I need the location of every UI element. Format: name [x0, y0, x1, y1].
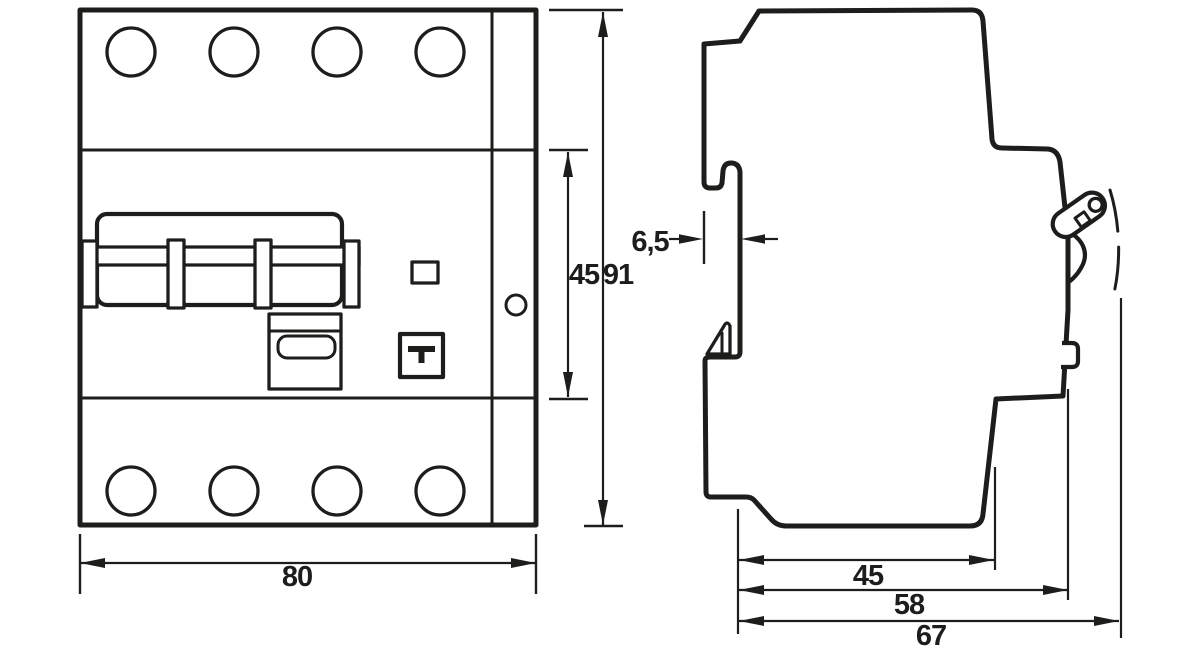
din-rail-clip — [707, 323, 730, 354]
terminal-circle — [416, 467, 464, 515]
terminal-circle — [416, 28, 464, 76]
lever-swing-arc — [1110, 190, 1119, 293]
handle-end-cap-left — [82, 241, 97, 307]
handle-tie-bar — [82, 247, 359, 265]
arrow-down-icon — [598, 500, 608, 525]
dimension-drawing: 80 45 91 — [0, 0, 1200, 657]
arrow-right-icon — [511, 558, 536, 568]
front-handle-assembly — [82, 214, 359, 308]
arrow-left-icon — [739, 616, 764, 626]
dim-67-label: 67 — [916, 620, 946, 652]
peephole-circle — [506, 295, 526, 315]
dim-45-front-label: 45 — [569, 259, 600, 291]
arrow-left-icon — [739, 555, 764, 565]
handle-connector — [255, 240, 271, 308]
test-button — [400, 334, 443, 377]
dimension-drawing-page: 80 45 91 — [0, 0, 1200, 657]
indicator-window — [412, 262, 438, 283]
side-view — [704, 10, 1119, 526]
dim-91-label: 91 — [603, 259, 634, 291]
t-symbol-icon — [408, 346, 435, 352]
front-view — [80, 10, 536, 525]
arrow-right-icon — [1094, 616, 1119, 626]
dim-45-side-label: 45 — [853, 560, 884, 592]
terminal-circle — [313, 467, 361, 515]
arrow-right-icon — [679, 234, 703, 243]
handle-end-cap-right — [344, 241, 359, 307]
dim-58-label: 58 — [894, 589, 925, 621]
arrow-up-icon — [563, 152, 573, 177]
clip-wedge — [707, 323, 730, 354]
arrow-left-icon — [80, 558, 105, 568]
handle-connector — [168, 240, 184, 308]
front-tab — [1061, 343, 1078, 367]
terminal-circle — [313, 28, 361, 76]
dim-80-label: 80 — [282, 561, 312, 593]
front-status-window — [269, 314, 341, 389]
t-symbol-stem-icon — [419, 352, 425, 363]
arrow-right-icon — [969, 555, 994, 565]
arrow-down-icon — [563, 372, 573, 397]
side-body-outline — [704, 10, 1068, 526]
status-window-flag — [278, 336, 335, 358]
arrow-left-icon — [739, 585, 764, 595]
terminal-circle — [107, 28, 155, 76]
arrow-up-icon — [598, 12, 608, 37]
terminal-circle — [210, 28, 258, 76]
dim-65-label: 6,5 — [631, 226, 669, 258]
arrow-right-icon — [1043, 585, 1068, 595]
terminal-circle — [107, 467, 155, 515]
terminal-circle — [210, 467, 258, 515]
